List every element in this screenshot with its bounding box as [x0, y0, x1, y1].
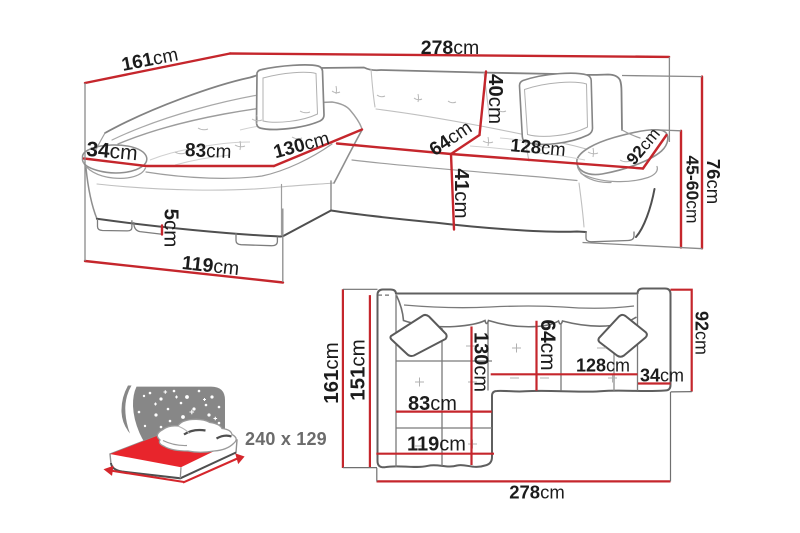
svg-text:83cm: 83cm: [408, 393, 457, 415]
svg-text:34cm: 34cm: [640, 366, 684, 386]
svg-text:64cm: 64cm: [536, 319, 559, 370]
svg-text:41cm: 41cm: [450, 168, 473, 218]
svg-text:34cm: 34cm: [85, 138, 138, 165]
svg-text:161cm: 161cm: [320, 342, 343, 404]
svg-text:5cm: 5cm: [160, 209, 183, 248]
svg-text:83cm: 83cm: [185, 140, 232, 163]
svg-text:130cm: 130cm: [470, 332, 492, 392]
svg-text:240 x 129: 240 x 129: [245, 429, 327, 449]
svg-text:151cm: 151cm: [347, 339, 370, 401]
svg-text:76cm: 76cm: [703, 159, 724, 204]
svg-text:40cm: 40cm: [484, 74, 507, 124]
svg-text:92cm: 92cm: [692, 311, 712, 355]
svg-text:45-60cm: 45-60cm: [683, 155, 703, 223]
svg-text:278cm: 278cm: [421, 37, 480, 59]
svg-text:128cm: 128cm: [576, 356, 630, 376]
svg-text:278cm: 278cm: [509, 482, 565, 503]
svg-text:119cm: 119cm: [407, 434, 466, 456]
